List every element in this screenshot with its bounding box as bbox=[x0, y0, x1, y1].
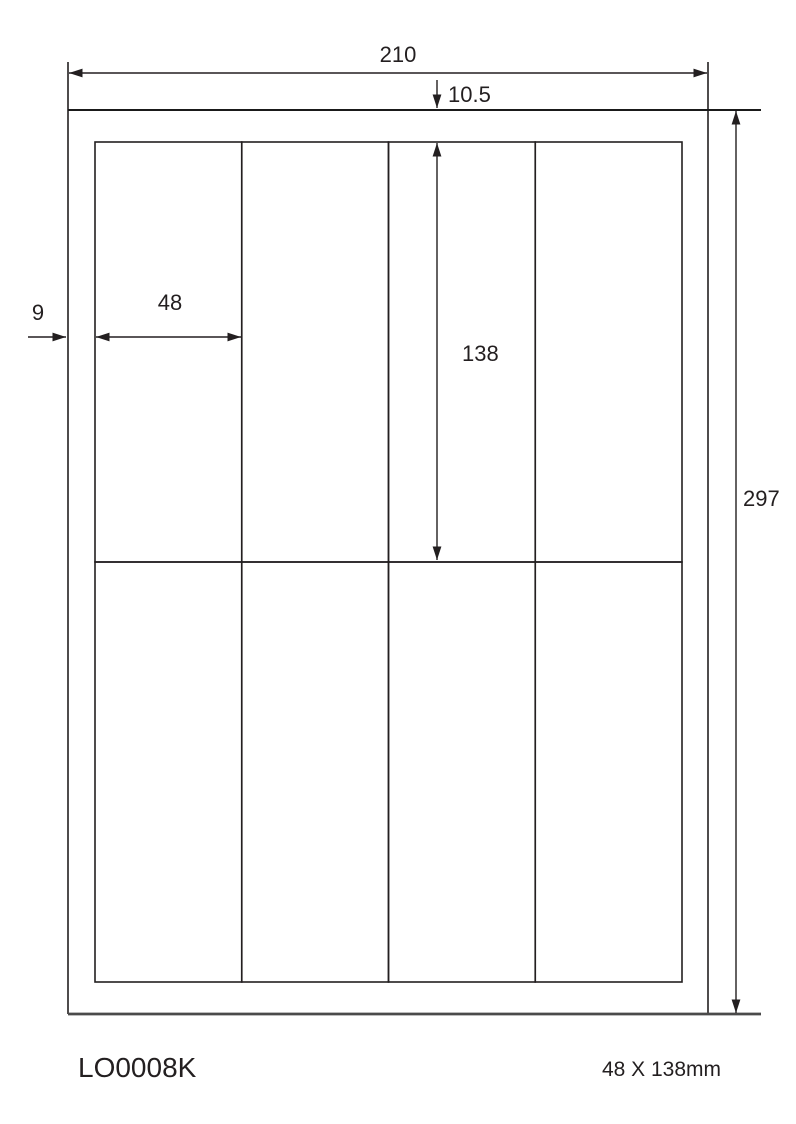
dim-page-width: 210 bbox=[69, 42, 707, 73]
dim-page-height-label: 297 bbox=[743, 486, 780, 511]
dim-label-height-label: 138 bbox=[462, 341, 499, 366]
label-cell bbox=[95, 142, 242, 562]
label-cell bbox=[389, 562, 536, 982]
diagram-svg: 210 10.5 9 48 138 297 LO0008K bbox=[0, 0, 796, 1124]
label-cell bbox=[535, 562, 682, 982]
label-size-text: 48 X 138mm bbox=[602, 1058, 721, 1081]
label-cell bbox=[242, 562, 389, 982]
dim-top-margin: 10.5 bbox=[437, 80, 491, 108]
dim-page-height: 297 bbox=[736, 111, 780, 1013]
page-outline bbox=[68, 62, 761, 1014]
dim-label-width-label: 48 bbox=[158, 290, 182, 315]
dim-label-width: 48 bbox=[96, 290, 241, 337]
label-grid bbox=[95, 142, 682, 982]
product-code: LO0008K bbox=[78, 1052, 197, 1083]
dim-side-margin: 9 bbox=[28, 300, 66, 337]
dim-side-margin-label: 9 bbox=[32, 300, 44, 325]
label-cell bbox=[535, 142, 682, 562]
footer: LO0008K 48 X 138mm bbox=[78, 1052, 721, 1083]
dim-top-margin-label: 10.5 bbox=[448, 82, 491, 107]
label-cell bbox=[242, 142, 389, 562]
dim-label-height: 138 bbox=[437, 143, 499, 560]
label-cell bbox=[95, 562, 242, 982]
label-sheet-diagram: 210 10.5 9 48 138 297 LO0008K bbox=[0, 0, 796, 1124]
dim-page-width-label: 210 bbox=[380, 42, 417, 67]
